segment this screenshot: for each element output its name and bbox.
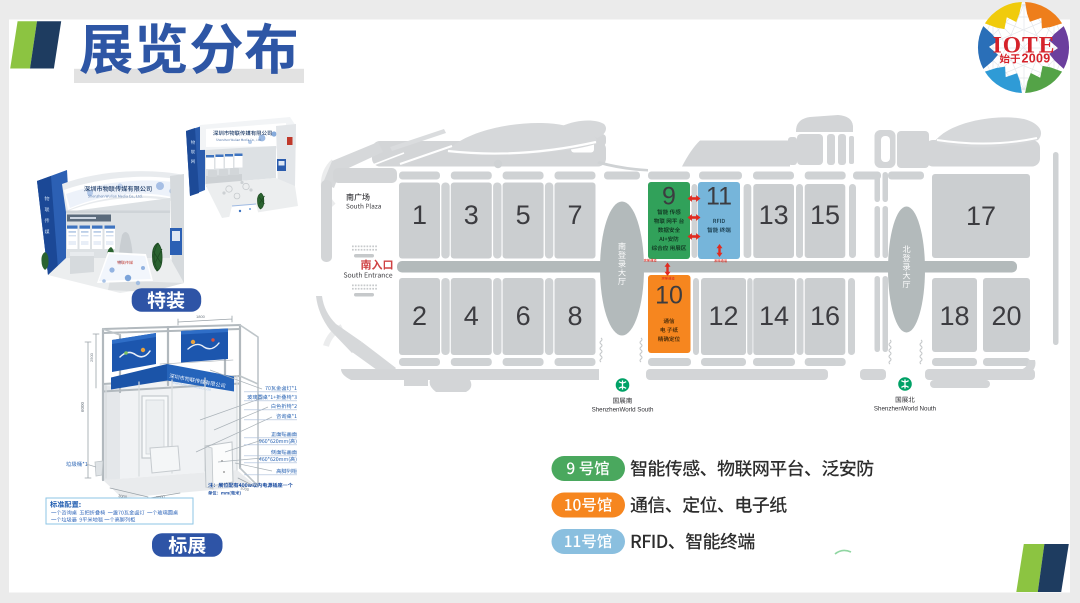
- svg-text:20: 20: [991, 301, 1021, 331]
- svg-text:1: 1: [412, 200, 427, 230]
- svg-text:16: 16: [810, 301, 840, 331]
- svg-text:2009: 2009: [1022, 52, 1051, 66]
- svg-text:2: 2: [412, 301, 427, 331]
- svg-text:13: 13: [759, 200, 789, 230]
- svg-text:6000: 6000: [80, 401, 85, 412]
- svg-text:14: 14: [759, 301, 789, 331]
- svg-text:11: 11: [706, 183, 732, 211]
- svg-text:6: 6: [516, 301, 531, 331]
- svg-text:7: 7: [567, 200, 582, 230]
- svg-text:3: 3: [464, 200, 479, 230]
- svg-text:15: 15: [810, 200, 840, 230]
- svg-text:2500: 2500: [89, 352, 94, 362]
- svg-text:9: 9: [662, 183, 676, 211]
- svg-text:17: 17: [966, 201, 996, 231]
- svg-text:10: 10: [655, 282, 683, 310]
- svg-text:4: 4: [464, 301, 479, 331]
- svg-text:12: 12: [708, 301, 738, 331]
- svg-text:5: 5: [516, 200, 531, 230]
- svg-text:8: 8: [567, 301, 582, 331]
- svg-text:ShenzhenWorld Nouth: ShenzhenWorld Nouth: [874, 406, 937, 413]
- svg-text:ShenzhenWorld South: ShenzhenWorld South: [592, 407, 654, 414]
- svg-text:18: 18: [939, 301, 969, 331]
- svg-text:1800: 1800: [196, 314, 206, 319]
